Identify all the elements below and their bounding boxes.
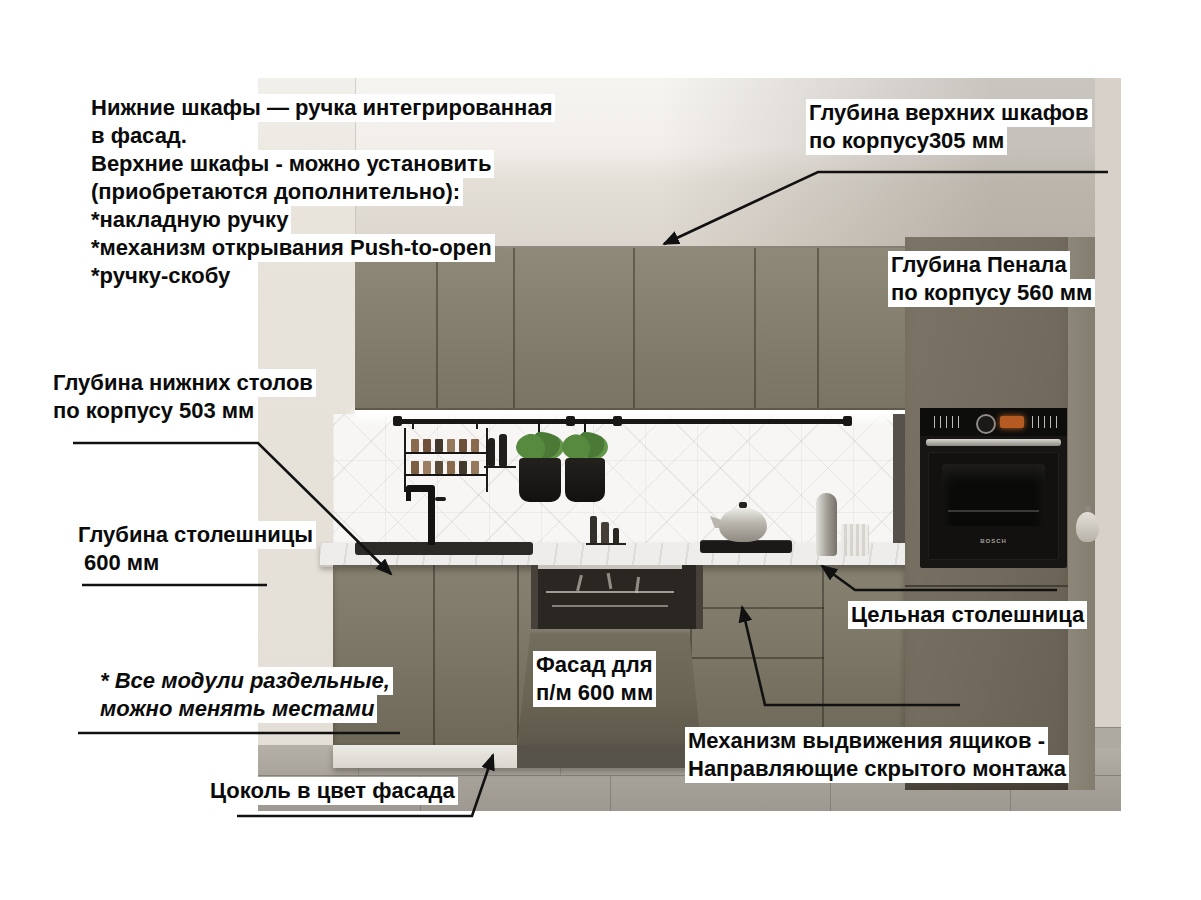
label-line: Глубина Пенала [888,251,1070,279]
label-pantry-depth: Глубина Пенала по корпусу 560 мм [888,251,1095,307]
counter-spice-bottle [590,516,597,544]
rail-cap [613,416,622,426]
note-handles: Нижние шкафы — ручка интегрированная в ф… [88,94,555,290]
label-line: 600 мм [81,549,162,577]
note-line: в фасад. [88,122,190,150]
note-line: можно менять местами [97,695,377,723]
label-drawer-mechanism: Механизм выдвижения ящиков - Направляющи… [685,727,1069,783]
note-line: *ручку-скобу [88,262,233,290]
glass-cup [841,524,869,556]
label-line: Цельная столешница [848,601,1087,629]
upper-door-seam [817,248,819,408]
dishwasher-open-cavity [531,565,703,629]
plinth-dishwasher-shadow [517,745,701,768]
pepper-grinder [488,438,495,466]
spice-jar [471,461,479,474]
label-line: Направляющие скрытого монтажа [685,755,1069,783]
counter-spice-bottle [601,522,609,544]
label-line: по корпусу 503 мм [50,397,257,425]
rack-shelf [406,474,486,476]
spice-jar [447,439,455,452]
spice-rack [404,428,488,492]
rack-hook [412,419,414,429]
floor-grout-line [610,776,611,811]
base-door-seam [517,565,519,745]
teapot-knob [1085,506,1091,512]
rack-hook [476,419,478,429]
faucet [428,485,435,545]
note-modules: * Все модули раздельные, можно менять ме… [97,667,393,723]
pepper-grinder [499,434,507,466]
spice-tray [586,543,626,545]
oven-door: BOSCH [928,452,1059,560]
rail-cap [843,416,852,426]
oven-brand-logo: BOSCH [928,538,1059,544]
hanging-planter [565,458,605,502]
note-line: * Все модули раздельные, [97,667,393,695]
teapot-decor [1076,512,1099,542]
note-line: *механизм открывания Push-to-open [88,234,495,262]
label-line: Глубина верхних шкафов [806,99,1092,127]
label-line: Глубина нижних столов [50,369,316,397]
label-solid-countertop: Цельная столешница [848,601,1087,629]
base-door-seam [433,565,435,745]
note-line: Нижние шкафы — ручка интегрированная [88,94,555,122]
kettle [719,508,767,542]
grinder-shelf [484,466,516,468]
spice-jar [447,461,455,474]
spice-jar [411,439,419,452]
rail-cap [566,416,575,426]
oven: BOSCH [920,408,1067,568]
dishwasher-utensil [607,573,613,589]
label-line: п/м 600 мм [533,679,656,707]
spice-jar [411,461,419,474]
dishwasher-rack [546,591,674,593]
spice-jar [459,461,467,474]
spice-jar [459,439,467,452]
annotated-kitchen-page: { "annotations": { "handles_note": { "li… [0,0,1201,900]
right-wall [1095,78,1121,738]
label-countertop-depth: Глубина столешницы 600 мм [75,521,316,577]
vase [816,493,837,556]
dishwasher-utensil [576,575,583,591]
label-line: Механизм выдвижения ящиков - [685,727,1048,755]
rail-cap [393,416,402,426]
oven-panel-icons [934,416,960,428]
wall-rail [393,419,852,424]
oven-handle [926,439,1061,446]
oven-display [1000,416,1024,428]
spice-jar [423,461,431,474]
label-plinth: Цоколь в цвет фасада [207,777,458,805]
label-dishwasher-facade: Фасад для п/м 600 мм [533,651,656,707]
note-line: Верхние шкафы - можно установить [88,150,494,178]
label-upper-cabinet-depth: Глубина верхних шкафов по корпусу305 мм [806,99,1092,155]
note-line: (приобретаются дополнительно): [88,178,463,206]
drawer-seam [690,607,824,609]
counter-spice-bottle [613,528,619,544]
upper-door-seam [754,248,756,408]
label-line: по корпусу305 мм [806,127,1007,155]
label-line: Глубина столешницы [75,521,316,549]
spice-jar [435,461,443,474]
faucet-nozzle [406,490,411,501]
drawer-seam [690,657,824,659]
label-line: Фасад для [533,651,656,679]
oven-window-reflection [948,510,1039,512]
label-base-cabinet-depth: Глубина нижних столов по корпусу 503 мм [50,369,316,425]
oven-dial [976,414,996,434]
label-line: по корпусу 560 мм [888,279,1095,307]
hanging-planter [519,458,561,502]
faucet-lever [435,497,446,501]
note-line: *накладную ручку [88,206,291,234]
spice-jar [423,439,431,452]
dishwasher-rack [552,605,668,607]
dishwasher-tub-edge [538,565,682,569]
spice-jar [435,439,443,452]
oven-panel-icons [1032,416,1058,428]
label-line: Цоколь в цвет фасада [207,777,458,805]
pantry-groove [905,585,1068,587]
spice-jar [471,439,479,452]
rack-shelf [406,452,486,454]
upper-door-seam [633,248,635,408]
kettle-knob [739,502,747,508]
oven-window [942,464,1045,526]
base-door-seam [822,565,824,745]
sink [355,542,533,555]
